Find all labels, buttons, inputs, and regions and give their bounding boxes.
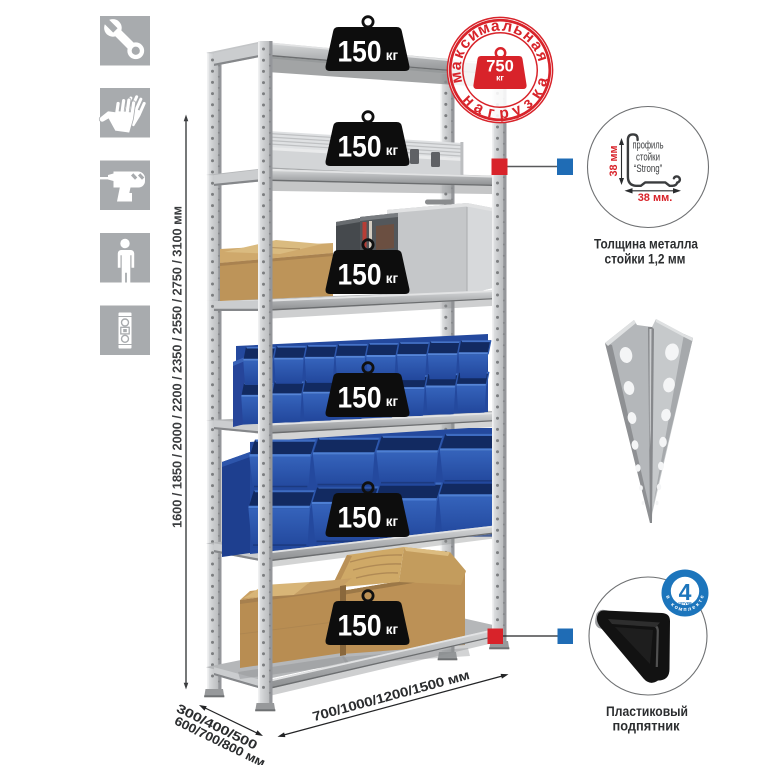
svg-text:подпятник: подпятник xyxy=(613,718,681,734)
svg-text:кг: кг xyxy=(386,48,399,63)
svg-text:“Strong”: “Strong” xyxy=(634,163,663,175)
svg-text:38 мм.: 38 мм. xyxy=(638,192,673,204)
svg-text:кг: кг xyxy=(386,143,399,158)
svg-text:кг: кг xyxy=(386,514,399,529)
svg-text:кг: кг xyxy=(386,394,399,409)
svg-text:150: 150 xyxy=(338,610,382,643)
svg-text:150: 150 xyxy=(338,382,382,415)
svg-text:кг: кг xyxy=(496,73,504,83)
svg-text:стойки 1,2 мм: стойки 1,2 мм xyxy=(605,251,686,267)
svg-text:Толщина металла: Толщина металла xyxy=(594,236,698,252)
svg-text:п: п xyxy=(683,607,686,613)
svg-text:р: р xyxy=(499,105,510,123)
svg-text:1600 / 1850 / 2000 / 2200 / 23: 1600 / 1850 / 2000 / 2200 / 2350 / 2550 … xyxy=(170,206,185,528)
svg-text:150: 150 xyxy=(338,259,382,292)
svg-text:стойки: стойки xyxy=(636,151,660,163)
svg-text:38 мм: 38 мм xyxy=(608,145,620,176)
svg-text:150: 150 xyxy=(338,502,382,535)
svg-text:150: 150 xyxy=(338,131,382,164)
svg-text:профиль: профиль xyxy=(633,140,664,152)
svg-text:кг: кг xyxy=(386,622,399,637)
svg-text:штуки: штуки xyxy=(678,601,692,606)
svg-text:кг: кг xyxy=(386,271,399,286)
svg-text:150: 150 xyxy=(338,36,382,69)
